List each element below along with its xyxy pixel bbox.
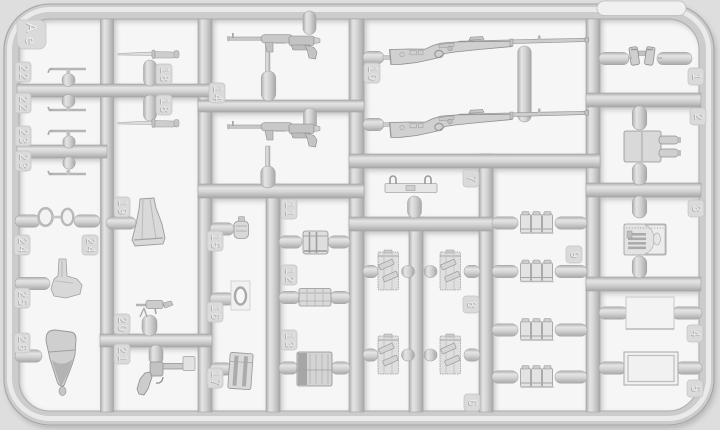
svg-text:7: 7 [209,379,221,385]
svg-text:6: 6 [16,344,28,350]
svg-text:1: 1 [283,210,295,216]
svg-text:3: 3 [283,341,295,347]
svg-text:2: 2 [116,347,128,353]
svg-text:9: 9 [568,251,580,257]
svg-text:2: 2 [84,238,96,244]
svg-text:2: 2 [17,154,29,160]
svg-text:2: 2 [116,317,128,323]
svg-text:5: 5 [689,385,701,391]
svg-text:1: 1 [209,234,221,240]
svg-text:1: 1 [209,371,221,377]
svg-text:6: 6 [466,399,478,405]
svg-text:A: A [23,23,39,33]
svg-text:1: 1 [211,86,223,92]
svg-text:2: 2 [16,336,28,342]
svg-text:1: 1 [158,98,170,104]
svg-text:2: 2 [17,129,29,135]
svg-text:3: 3 [17,162,29,168]
svg-text:5: 5 [16,299,28,305]
svg-text:1: 1 [158,67,170,73]
svg-text:0: 0 [366,74,378,80]
svg-text:2: 2 [17,65,29,71]
svg-text:5: 5 [209,242,221,248]
svg-text:1: 1 [690,73,702,79]
svg-text:2: 2 [17,73,29,79]
svg-text:2: 2 [17,104,29,110]
svg-text:2: 2 [16,238,28,244]
svg-text:0: 0 [116,325,128,331]
svg-text:1: 1 [116,355,128,361]
svg-text:3: 3 [17,137,29,143]
svg-text:1: 1 [366,66,378,72]
svg-text:4: 4 [16,246,28,253]
svg-text:4: 4 [84,246,96,253]
svg-text:8: 8 [465,301,477,307]
svg-text:4: 4 [211,94,223,101]
svg-text:1: 1 [116,200,128,206]
svg-text:1: 1 [283,268,295,274]
svg-text:2: 2 [17,96,29,102]
svg-text:3: 3 [690,205,702,211]
svg-text:1: 1 [209,305,221,311]
svg-text:e: e [23,37,39,45]
svg-text:2: 2 [692,113,704,119]
svg-text:8: 8 [158,75,170,81]
svg-text:7: 7 [465,175,477,181]
svg-text:1: 1 [283,333,295,339]
svg-text:2: 2 [283,276,295,282]
svg-text:4: 4 [689,330,701,337]
svg-text:1: 1 [283,202,295,208]
svg-text:6: 6 [209,313,221,319]
svg-text:8: 8 [158,106,170,112]
svg-text:9: 9 [116,208,128,214]
svg-text:2: 2 [16,291,28,297]
